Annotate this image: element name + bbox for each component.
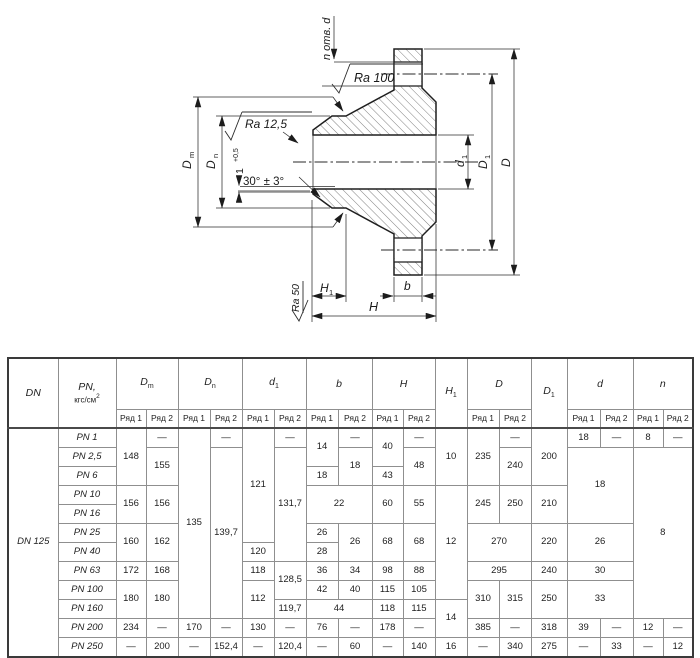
table-cell: 178 [372,619,403,638]
table-cell: — [403,619,435,638]
row-label: PN 6 [58,467,116,486]
table-cell: — [146,619,178,638]
row-label: PN 160 [58,600,116,619]
table-cell: 180 [146,581,178,619]
table-cell: — [567,638,600,658]
table-cell: — [499,428,531,448]
root-face-tol-label: +0,5 [233,148,240,162]
n-holes-label: n отв. d [321,17,333,60]
column-header: d [567,358,633,410]
table-cell: — [600,619,633,638]
table-cell: — [663,619,693,638]
row-label: PN 200 [58,619,116,638]
table-cell: 112 [242,581,274,619]
table-cell: 235 [467,428,499,486]
table-cell: — [338,619,372,638]
column-header: H [372,358,435,410]
row-series-header: Ряд 2 [274,410,306,429]
table-cell: 240 [499,448,531,486]
row-series-header: Ряд 1 [633,410,663,429]
table-cell: 180 [116,581,146,619]
table-cell: 12 [435,486,467,600]
table-cell: 42 [306,581,338,600]
table-cell: 250 [499,486,531,524]
table-cell: 8 [633,428,663,448]
table-cell: 88 [403,562,435,581]
table-cell: 18 [567,428,600,448]
table-cell: — [210,428,242,448]
column-header: Dn [178,358,242,410]
table-row: PN 63172168118128,53634988829524030 [8,562,693,581]
table-cell: 385 [467,619,499,638]
column-header: n [633,358,693,410]
column-header: Dm [116,358,178,410]
drawing-labels: n отв. d Ra 100 Ra 12,5 Ra 50 30° ± 3° 1… [180,17,513,314]
table-cell: — [178,638,210,658]
table-wrapper: DNPN,кгс/см2DmDnd1bHH1DD1dnРяд 1Ряд 2Ряд… [7,357,693,658]
row-series-header: Ряд 2 [210,410,242,429]
table-cell: 118 [372,600,403,619]
row-label: PN 16 [58,505,116,524]
table-row: PN 251601622626686827022026 [8,524,693,543]
table-cell: 162 [146,524,178,562]
row-label: PN 100 [58,581,116,600]
table-cell: 60 [372,486,403,524]
table-cell: 39 [567,619,600,638]
row-series-header: Ряд 2 [499,410,531,429]
table-cell: — [403,428,435,448]
table-cell: 275 [531,638,567,658]
table-cell: 200 [531,428,567,486]
bevel-angle-label: 30° ± 3° [243,176,284,188]
table-cell: — [306,638,338,658]
dim-D-label: D [499,158,513,167]
table-cell: 170 [178,619,210,638]
table-cell: 33 [600,638,633,658]
table-cell: 8 [633,448,693,619]
dim-d1-label: d [453,160,467,167]
table-cell: — [274,428,306,448]
table-row: PN 200234—170—130—76—178—385—31839—12— [8,619,693,638]
row-series-header: Ряд 1 [467,410,499,429]
row-series-header: Ряд 1 [372,410,403,429]
table-cell: 140 [403,638,435,658]
column-header: b [306,358,372,410]
table-cell: — [242,638,274,658]
table-cell: 155 [146,448,178,486]
table-cell: — [600,428,633,448]
table-cell: 18 [338,448,372,486]
dim-Dm-label: D [180,160,194,169]
table-cell: 121 [242,428,274,543]
table-cell: 210 [531,486,567,524]
table-cell: — [663,428,693,448]
row-series-header: Ряд 1 [242,410,274,429]
table-cell: 234 [116,619,146,638]
dim-D1-sub: 1 [483,155,492,159]
table-cell: 14 [435,600,467,638]
dim-H-label: H [369,300,379,314]
table-cell: 118 [242,562,274,581]
table-cell: 40 [372,428,403,467]
table-cell: 315 [499,581,531,619]
table-cell: 26 [338,524,372,562]
row-series-header: Ряд 2 [338,410,372,429]
row-series-header: Ряд 1 [306,410,338,429]
table-cell: 105 [403,581,435,600]
ra50-label: Ra 50 [290,284,302,312]
dim-D1-label: D [476,160,490,169]
table-cell: 18 [567,448,633,524]
table-cell: 120,4 [274,638,306,658]
table-row: PN 2,5155139,7131,71848240188 [8,448,693,467]
table-cell: — [116,638,146,658]
table-cell: 270 [467,524,531,562]
dim-Dn-sub: n [211,154,220,158]
table-cell: — [146,428,178,448]
table-cell: 160 [116,524,146,562]
table-cell: — [499,619,531,638]
table-cell: 40 [338,581,372,600]
table-row: DN 125PN 1148—135—121—14—40—10235—20018—… [8,428,693,448]
dim-d1-sub: 1 [460,155,469,159]
ra125-label: Ra 12,5 [245,117,287,131]
table-cell: 76 [306,619,338,638]
row-series-header: Ряд 2 [146,410,178,429]
table-cell: 148 [116,428,146,486]
dim-H1-sub: 1 [329,288,333,297]
table-cell: 14 [306,428,338,467]
table-cell: 10 [435,428,467,486]
dim-H1-label: H [320,281,329,295]
table-cell: 98 [372,562,403,581]
table-cell: — [372,638,403,658]
row-series-header: Ряд 2 [663,410,693,429]
row-label: PN 63 [58,562,116,581]
table-cell: 43 [372,467,403,486]
table-cell: 28 [306,543,338,562]
table-cell: 128,5 [274,562,306,600]
table-cell: 12 [663,638,693,658]
row-series-header: Ряд 2 [403,410,435,429]
table-cell: 33 [567,581,633,619]
table-cell: 340 [499,638,531,658]
flange-drawing: n отв. d Ra 100 Ra 12,5 Ra 50 30° ± 3° 1… [0,0,700,352]
table-cell: 68 [403,524,435,562]
table-cell: 250 [531,581,567,619]
dimensions-table: DNPN,кгс/см2DmDnd1bHH1DD1dnРяд 1Ряд 2Ряд… [7,357,694,658]
root-face-label: 1 [234,168,246,174]
table-cell: 34 [338,562,372,581]
page: n отв. d Ra 100 Ra 12,5 Ra 50 30° ± 3° 1… [0,0,700,658]
row-label: PN 1 [58,428,116,448]
column-header: d1 [242,358,306,410]
dim-Dm-sub: m [187,152,196,158]
table-cell: 26 [567,524,633,562]
table-cell: — [467,638,499,658]
table-cell: 36 [306,562,338,581]
table-row: PN 250—200—152,4—120,4—60—14016—340275—3… [8,638,693,658]
row-label: PN 25 [58,524,116,543]
table-cell: — [210,619,242,638]
column-header: D1 [531,358,567,428]
row-label: PN 40 [58,543,116,562]
row-label: PN 250 [58,638,116,658]
table-cell: 44 [306,600,372,619]
dim-Dn-label: D [204,160,218,169]
table-cell: 318 [531,619,567,638]
table-cell: 119,7 [274,600,306,619]
table-cell: 156 [146,486,178,524]
table-cell: 12 [633,619,663,638]
table-cell: 152,4 [210,638,242,658]
table-cell: 131,7 [274,448,306,562]
row-series-header: Ряд 2 [600,410,633,429]
row-label: DN 125 [8,428,58,657]
table-cell: 22 [306,486,372,524]
table-cell: 26 [306,524,338,543]
table-cell: 120 [242,543,274,562]
table-cell: 295 [467,562,531,581]
table-cell: 16 [435,638,467,658]
table-cell: 48 [403,448,435,486]
column-header: DN [8,358,58,428]
table-cell: 60 [338,638,372,658]
column-header: PN,кгс/см2 [58,358,116,428]
ra100-label: Ra 100 [354,71,394,85]
table-cell: 245 [467,486,499,524]
table-cell: 220 [531,524,567,562]
table-cell: 156 [116,486,146,524]
table-cell: 18 [306,467,338,486]
dim-b-label: b [404,279,411,293]
table-row: PN 100180180112424011510531031525033 [8,581,693,600]
row-series-header: Ряд 1 [178,410,210,429]
row-series-header: Ряд 1 [116,410,146,429]
row-series-header: Ряд 1 [567,410,600,429]
table-cell: — [338,428,372,448]
table-cell: — [274,619,306,638]
table-cell: 139,7 [210,448,242,619]
table-cell: — [633,638,663,658]
table-cell: 168 [146,562,178,581]
row-label: PN 10 [58,486,116,505]
table-cell: 172 [116,562,146,581]
row-label: PN 2,5 [58,448,116,467]
table-cell: 30 [567,562,633,581]
column-header: H1 [435,358,467,428]
table-cell: 200 [146,638,178,658]
table-cell: 68 [372,524,403,562]
column-header: D [467,358,531,410]
table-cell: 55 [403,486,435,524]
table-cell: 115 [403,600,435,619]
table-cell: 135 [178,428,210,619]
table-cell: 240 [531,562,567,581]
table-cell: 310 [467,581,499,619]
table-cell: 130 [242,619,274,638]
table-cell: 115 [372,581,403,600]
